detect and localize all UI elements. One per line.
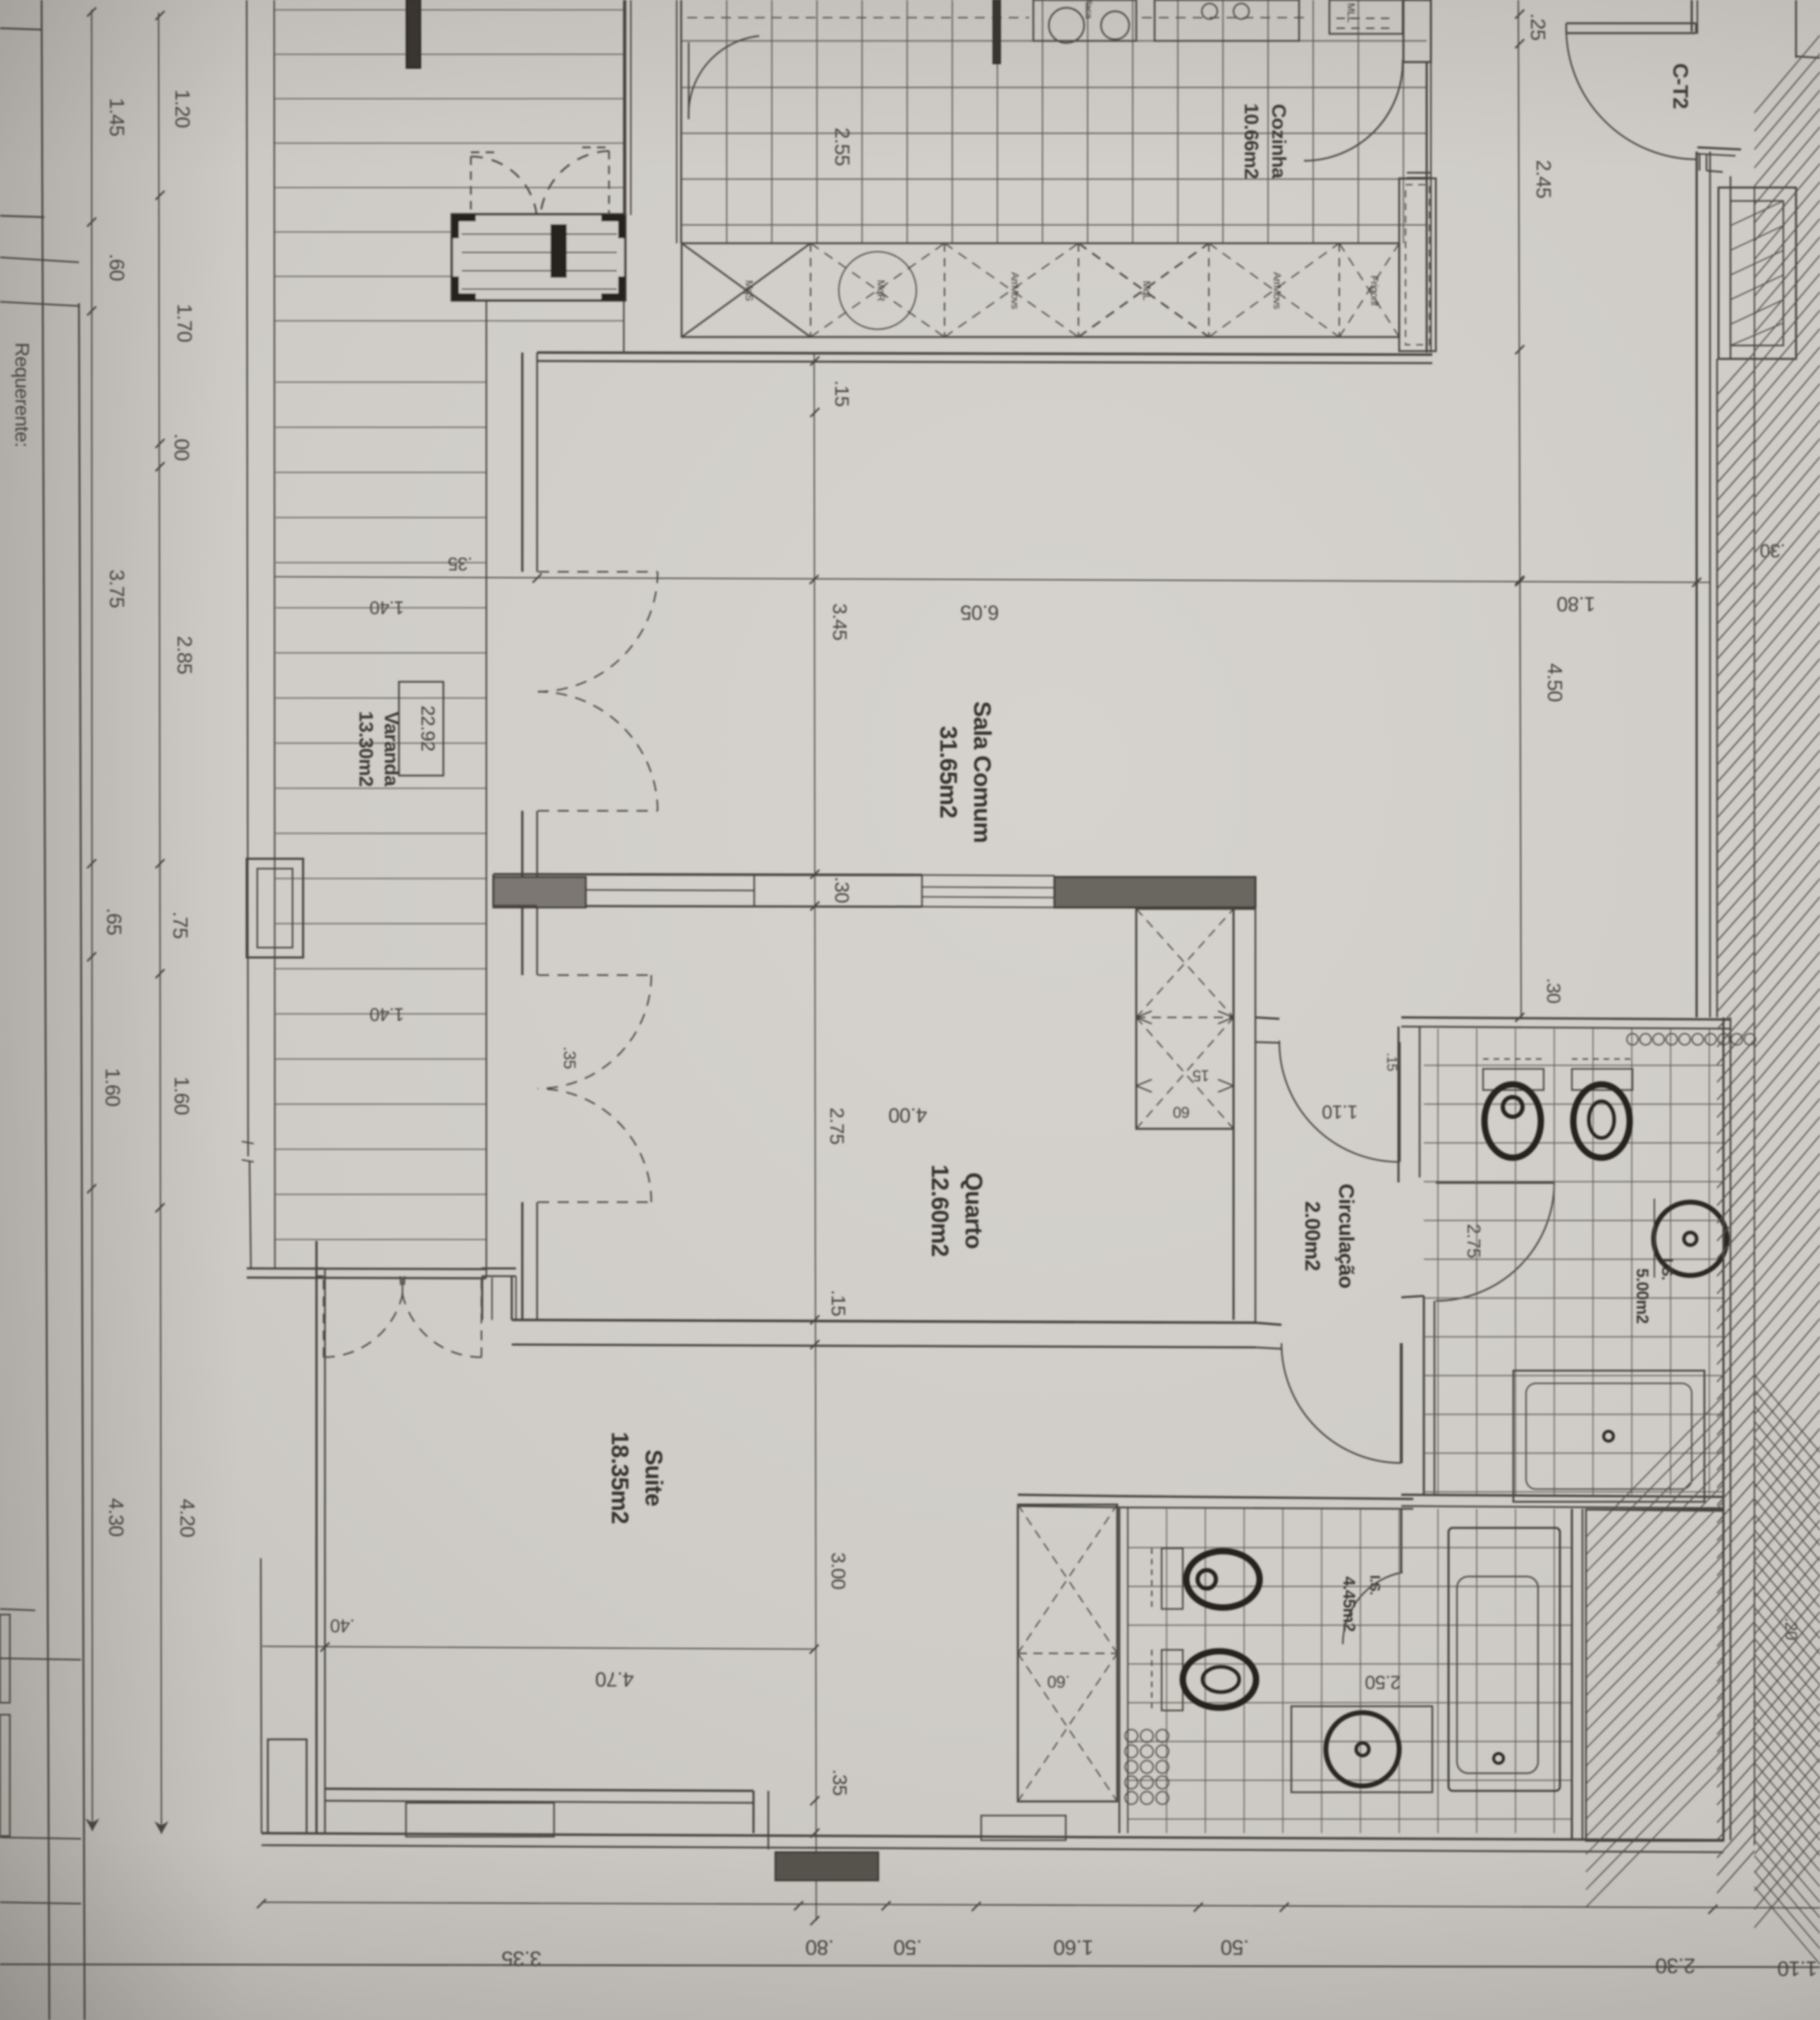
svg-text:1.40: 1.40 [370, 597, 405, 618]
svg-text:1.60: 1.60 [101, 1068, 123, 1106]
svg-text:.35: .35 [560, 1046, 579, 1069]
svg-text:1.10: 1.10 [1322, 1101, 1358, 1122]
svg-text:I.S.: I.S. [1659, 1258, 1676, 1280]
svg-text:MqR: MqR [875, 280, 887, 302]
svg-text:4.00: 4.00 [889, 1103, 927, 1126]
svg-text:2.85: 2.85 [173, 636, 195, 674]
svg-text:3.00: 3.00 [828, 1553, 849, 1590]
svg-text:ArrMovs: ArrMovs [1271, 272, 1283, 309]
svg-text:.15: .15 [1384, 1053, 1399, 1072]
svg-text:Frigorif: Frigorif [1368, 276, 1380, 307]
svg-text:.75: .75 [168, 912, 191, 939]
svg-text:4.30: 4.30 [104, 1498, 127, 1536]
svg-text:1.40: 1.40 [370, 1004, 405, 1025]
svg-text:Cozinha: Cozinha [1268, 104, 1290, 178]
svg-text:.35: .35 [829, 1769, 851, 1795]
svg-text:3.75: 3.75 [105, 570, 128, 608]
svg-text:.50: .50 [894, 1935, 922, 1959]
svg-text:Sala Comum: Sala Comum [969, 702, 995, 843]
svg-text:2.00m2: 2.00m2 [1301, 1201, 1324, 1271]
svg-text:2.50: 2.50 [1365, 1672, 1401, 1693]
svg-text:MLL: MLL [1345, 3, 1357, 23]
svg-text:ArrMovs: ArrMovs [1009, 272, 1021, 309]
svg-text:.60: .60 [1047, 1672, 1070, 1691]
svg-text:Requerente:: Requerente: [11, 343, 33, 448]
svg-text:.00: .00 [170, 434, 192, 461]
svg-text:3.35: 3.35 [502, 1947, 541, 1970]
svg-text:.35: .35 [448, 553, 473, 575]
svg-text:4.50: 4.50 [1543, 663, 1566, 702]
svg-text:.30: .30 [831, 876, 853, 902]
svg-text:MqL: MqL [1140, 281, 1152, 300]
svg-text:31.65m2: 31.65m2 [935, 726, 961, 819]
svg-text:13.30m2: 13.30m2 [355, 711, 377, 786]
svg-text:4.20: 4.20 [176, 1499, 198, 1537]
svg-text:.80: .80 [806, 1935, 834, 1959]
svg-text:1.60: 1.60 [170, 1077, 192, 1115]
svg-text:2.55: 2.55 [830, 128, 853, 166]
svg-text:.15: .15 [828, 1290, 849, 1316]
svg-text:.50: .50 [1221, 1935, 1249, 1959]
svg-text:4.70: 4.70 [596, 1667, 634, 1690]
svg-text:Quarto: Quarto [960, 1173, 987, 1249]
svg-text:Suite: Suite [640, 1450, 667, 1507]
svg-text:1.45: 1.45 [105, 98, 128, 136]
svg-text:6.05: 6.05 [961, 601, 999, 623]
svg-text:.60: .60 [105, 254, 128, 281]
svg-text:1.80: 1.80 [1557, 592, 1595, 615]
svg-text:2.45: 2.45 [1532, 160, 1554, 198]
svg-text:3.45: 3.45 [829, 604, 851, 641]
svg-text:15: 15 [1193, 1067, 1210, 1084]
svg-text:5.00m2: 5.00m2 [1633, 1268, 1652, 1324]
svg-text:.15: .15 [831, 380, 853, 406]
svg-text:Varanda: Varanda [381, 711, 402, 786]
svg-text:1.20: 1.20 [171, 90, 193, 128]
svg-text:.65: .65 [102, 908, 125, 936]
svg-text:12.60m2: 12.60m2 [926, 1165, 953, 1257]
svg-text:1.10: 1.10 [1778, 1957, 1817, 1980]
svg-text:10.66m2: 10.66m2 [1241, 103, 1262, 178]
svg-text:Circulação: Circulação [1334, 1184, 1358, 1289]
svg-text:22.92: 22.92 [417, 705, 438, 751]
svg-text:60: 60 [1173, 1103, 1190, 1121]
svg-text:2.75: 2.75 [826, 1108, 848, 1145]
svg-text:C-T2: C-T2 [1668, 63, 1692, 109]
svg-text:4.45m2: 4.45m2 [1339, 1577, 1358, 1632]
svg-text:2.30: 2.30 [1656, 1954, 1695, 1977]
svg-text:1.60: 1.60 [1054, 1935, 1093, 1959]
svg-text:.40: .40 [331, 1615, 355, 1636]
svg-text:18.35m2: 18.35m2 [606, 1432, 633, 1524]
svg-text:.30: .30 [1543, 978, 1564, 1003]
svg-text:Placa: Placa [1083, 0, 1095, 19]
svg-text:2.75: 2.75 [1463, 1224, 1484, 1259]
svg-text:1.70: 1.70 [173, 304, 195, 342]
svg-text:I.S.: I.S. [1367, 1575, 1382, 1595]
svg-text:.25: .25 [1526, 13, 1549, 41]
svg-text:MqS: MqS [743, 280, 755, 301]
